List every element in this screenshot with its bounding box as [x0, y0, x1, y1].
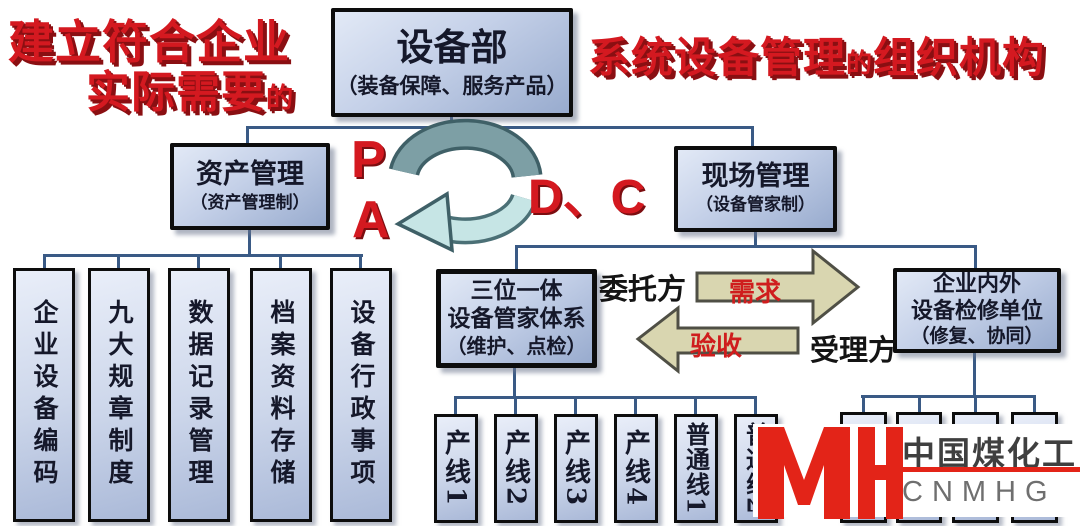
asset-child-label: 企业设备编码	[26, 299, 62, 491]
trinity-line2: 设备管家体系	[448, 306, 586, 332]
connector-line	[861, 395, 1036, 398]
heading-right-part2: 组织机构	[873, 34, 1045, 81]
heading-left-line2-text: 实际需要	[86, 68, 266, 117]
dept-title: 设备部	[397, 26, 508, 69]
heading-left-line2: 实际需要的	[86, 56, 294, 120]
pdca-cycle-arrow	[398, 134, 527, 250]
connector-line	[751, 126, 754, 147]
asset-child-box: 九大规章制度	[88, 268, 150, 522]
asset-title: 资产管理	[196, 159, 304, 190]
asset-management-box: 资产管理 （资产管理制）	[170, 143, 330, 230]
production-line-box: 产线3	[554, 414, 598, 523]
production-line-label: 产线1	[438, 429, 475, 508]
site-subtitle: （设备管家制）	[696, 195, 815, 216]
production-line-label: 产线4	[618, 429, 655, 508]
slide-canvas: 设备部 （装备保障、服务产品） 资产管理 （资产管理制） 现场管理 （设备管家制…	[0, 0, 1080, 526]
asset-child-box: 数据记录管理	[168, 268, 230, 522]
heading-right: 系统设备管理的组织机构	[588, 24, 1045, 85]
entrust-label: 委托方	[599, 266, 686, 308]
connector-line	[246, 126, 754, 129]
pdca-letter-a: A	[352, 190, 390, 250]
asset-child-label: 九大规章制度	[101, 299, 137, 491]
connector-line	[694, 396, 697, 416]
heading-right-suffix: 的	[846, 48, 873, 78]
logo-abbr: CNMHG	[902, 476, 1057, 509]
asset-child-box: 设备行政事项	[330, 268, 392, 522]
connector-line	[515, 245, 977, 248]
pdca-letters-dc: D、C	[528, 157, 645, 227]
production-line-label: 普通线1	[679, 422, 714, 515]
heading-left-suffix: 的	[266, 82, 294, 113]
connector-line	[514, 396, 517, 416]
asset-child-label: 数据记录管理	[181, 299, 217, 491]
trinity-box: 三位一体 设备管家体系 （维护、点检）	[436, 269, 597, 368]
connector-line	[974, 245, 977, 270]
pdca-letter-p: P	[351, 130, 386, 190]
connector-line	[43, 254, 363, 257]
connector-line	[973, 351, 976, 398]
dept-subtitle: （装备保障、服务产品）	[337, 73, 568, 99]
repair-line2: 设备检修单位	[911, 299, 1043, 324]
production-line-box: 产线4	[614, 414, 658, 523]
asset-child-label: 档案资料存储	[263, 299, 299, 491]
production-line-label: 产线3	[558, 429, 595, 508]
repair-line3: （修复、协同）	[910, 325, 1043, 349]
production-line-box: 产线2	[494, 414, 538, 523]
connector-line	[515, 245, 518, 272]
production-line-box: 普通线1	[674, 414, 718, 523]
asset-child-box: 档案资料存储	[250, 268, 312, 522]
accept-label: 验收	[690, 326, 742, 363]
logo-underline	[902, 467, 1080, 472]
site-title: 现场管理	[702, 161, 810, 192]
cnmhg-logo-monogram-icon	[755, 425, 905, 519]
trinity-line1: 三位一体	[471, 278, 563, 304]
repair-units-box: 企业内外 设备检修单位 （修复、协同）	[893, 268, 1061, 353]
heading-right-part1: 系统设备管理	[588, 34, 846, 81]
connector-line	[754, 396, 757, 416]
dept-box: 设备部 （装备保障、服务产品）	[331, 8, 573, 117]
cnmhg-logo: 中国煤化工 CNMHG	[753, 424, 1080, 517]
connector-line	[454, 396, 457, 416]
connector-line	[455, 396, 757, 399]
asset-subtitle: （资产管理制）	[191, 193, 310, 214]
connector-line	[574, 396, 577, 416]
asset-child-box: 企业设备编码	[13, 268, 75, 522]
connector-line	[513, 366, 516, 399]
production-line-label: 产线2	[498, 429, 535, 508]
demand-label: 需求	[729, 272, 781, 309]
trinity-line3: （维护、点检）	[447, 334, 587, 359]
pdca-arrowhead	[398, 194, 452, 250]
connector-line	[248, 228, 251, 257]
repair-line1: 企业内外	[933, 272, 1021, 297]
site-management-box: 现场管理 （设备管家制）	[674, 146, 837, 232]
connector-line	[634, 396, 637, 416]
production-line-box: 产线1	[434, 414, 478, 523]
asset-child-label: 设备行政事项	[343, 299, 379, 491]
handle-label: 受理方	[810, 327, 897, 369]
